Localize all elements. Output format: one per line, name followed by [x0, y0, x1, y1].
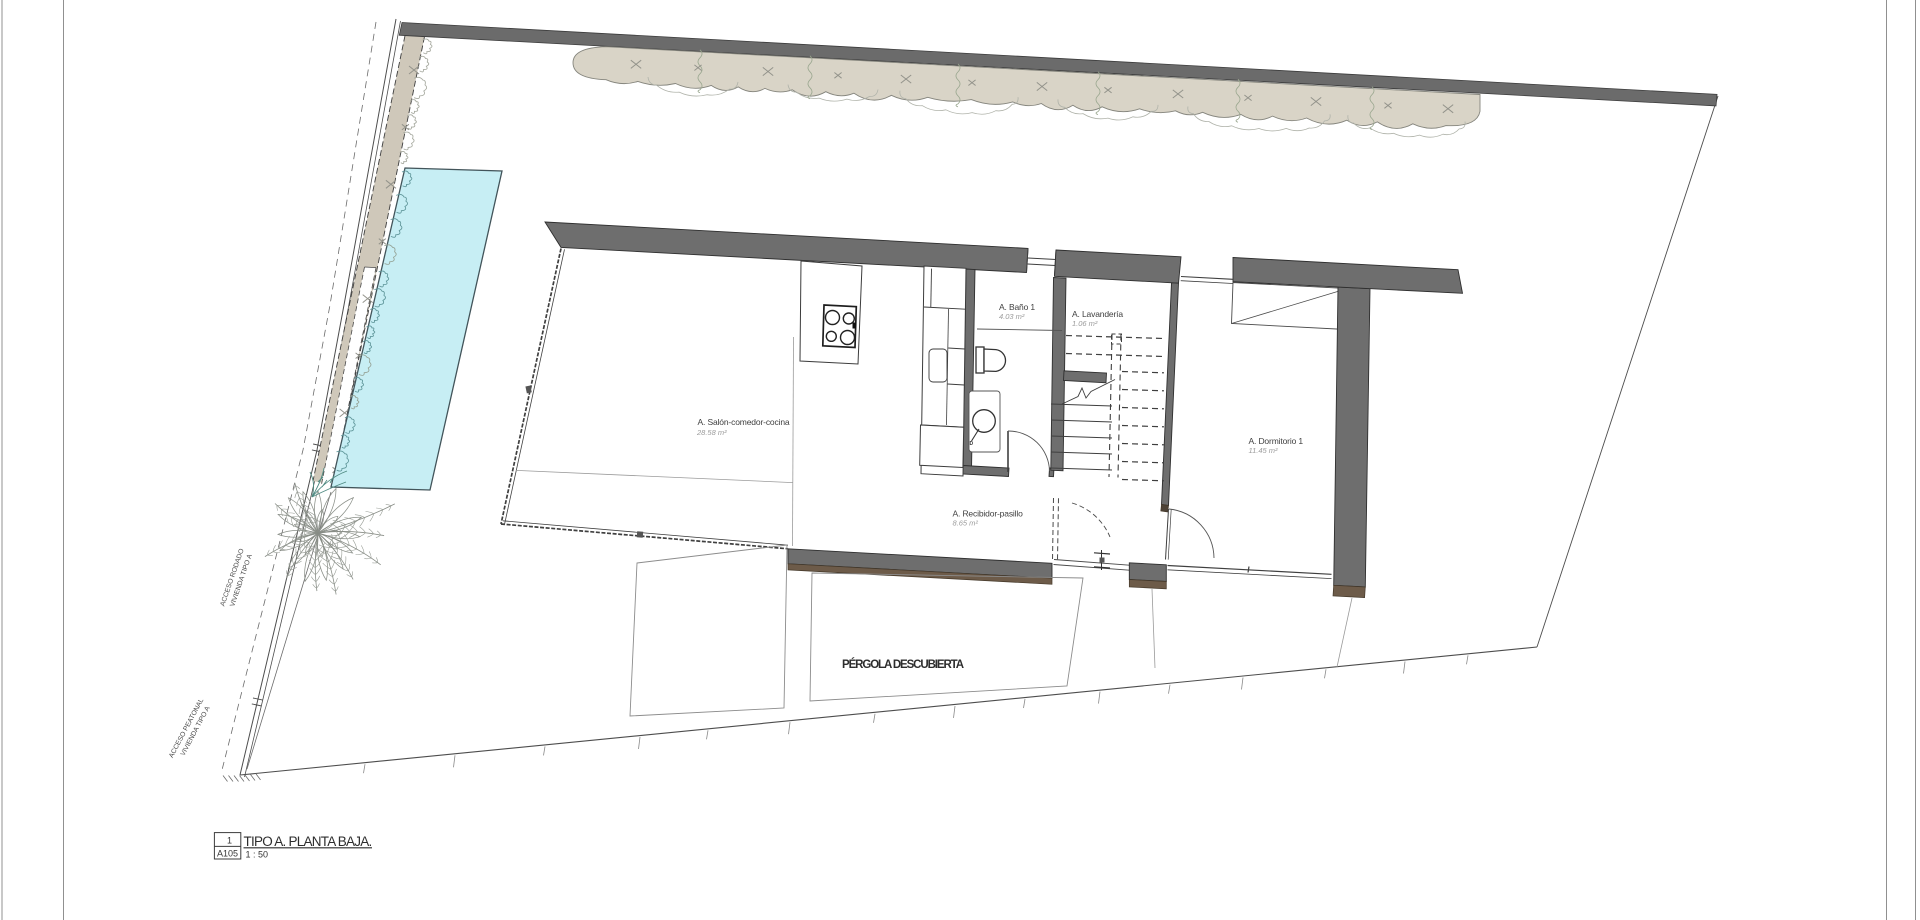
svg-text:4.03 m²: 4.03 m² [999, 312, 1025, 321]
svg-text:A. Dormitorio 1: A. Dormitorio 1 [1249, 436, 1304, 446]
svg-text:1: 1 [227, 836, 232, 846]
svg-text:11.45 m²: 11.45 m² [1249, 446, 1279, 455]
svg-text:A. Salón-comedor-cocina: A. Salón-comedor-cocina [698, 417, 790, 427]
svg-text:A. Recibidor-pasillo: A. Recibidor-pasillo [953, 509, 1024, 519]
svg-text:A105: A105 [217, 849, 238, 859]
svg-text:TIPO A. PLANTA BAJA.: TIPO A. PLANTA BAJA. [244, 834, 372, 849]
svg-text:A. Baño 1: A. Baño 1 [999, 302, 1035, 312]
svg-text:A. Lavandería: A. Lavandería [1072, 309, 1123, 319]
svg-text:8.65 m²: 8.65 m² [953, 519, 979, 528]
svg-text:D: D [970, 441, 974, 447]
svg-text:1 : 50: 1 : 50 [246, 850, 269, 860]
svg-text:1.06 m²: 1.06 m² [1072, 319, 1098, 328]
svg-text:PÉRGOLA DESCUBIERTA: PÉRGOLA DESCUBIERTA [842, 658, 964, 671]
svg-text:28.58 m²: 28.58 m² [696, 428, 727, 437]
